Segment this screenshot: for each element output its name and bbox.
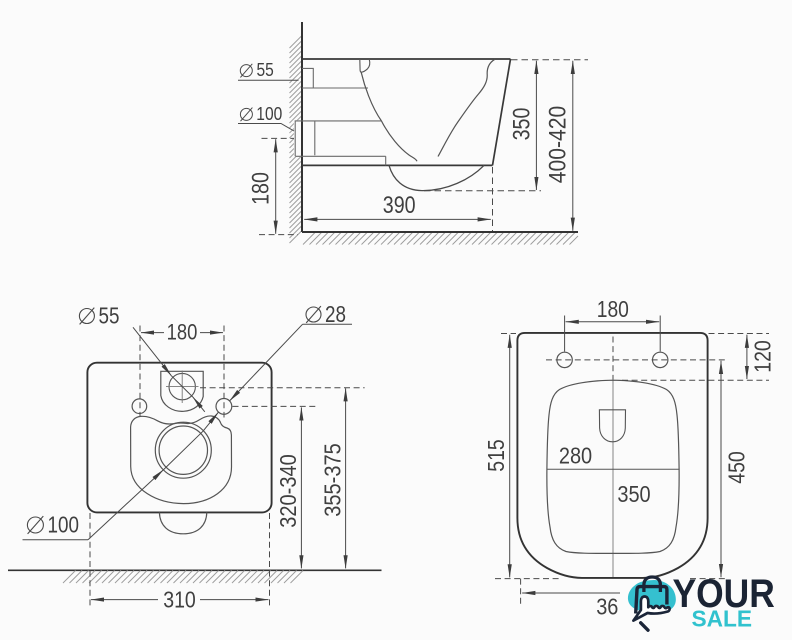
svg-text:SALE: SALE — [692, 605, 753, 631]
svg-text:310: 310 — [163, 587, 196, 613]
svg-text:120: 120 — [750, 340, 776, 373]
svg-text:515: 515 — [484, 439, 510, 472]
svg-text:280: 280 — [559, 442, 592, 469]
svg-text:180: 180 — [247, 172, 274, 205]
svg-text:100: 100 — [256, 104, 282, 125]
svg-text:390: 390 — [383, 191, 416, 218]
svg-text:180: 180 — [167, 320, 198, 345]
svg-text:100: 100 — [48, 513, 79, 538]
svg-text:355-375: 355-375 — [319, 443, 346, 516]
svg-text:28: 28 — [325, 302, 346, 327]
svg-text:36: 36 — [596, 593, 618, 620]
svg-text:350: 350 — [508, 108, 535, 141]
svg-text:55: 55 — [257, 60, 274, 81]
svg-text:450: 450 — [724, 451, 750, 484]
svg-text:320-340: 320-340 — [275, 454, 302, 527]
svg-text:350: 350 — [617, 480, 650, 507]
svg-text:400-420: 400-420 — [544, 106, 571, 183]
svg-text:55: 55 — [99, 304, 120, 329]
svg-text:180: 180 — [597, 296, 629, 322]
